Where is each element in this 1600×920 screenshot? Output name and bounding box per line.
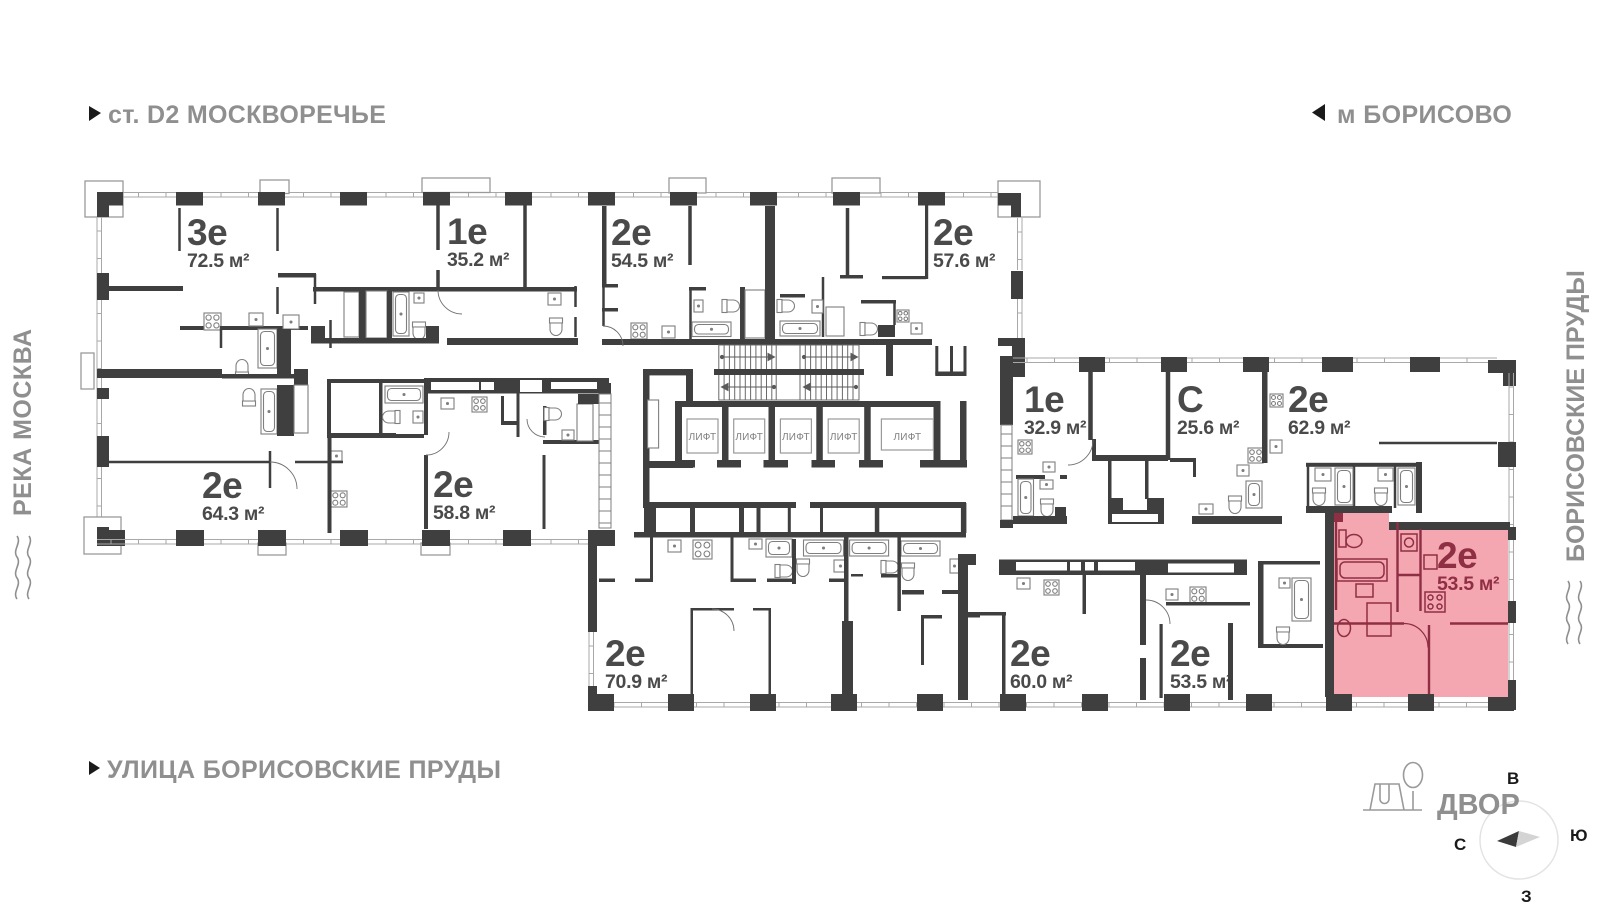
svg-text:53.5 м²: 53.5 м² bbox=[1170, 671, 1233, 693]
svg-text:С: С bbox=[1177, 379, 1203, 420]
svg-text:2е: 2е bbox=[433, 464, 473, 505]
svg-text:1е: 1е bbox=[447, 211, 487, 252]
svg-text:З: З bbox=[1521, 887, 1532, 906]
svg-text:2е: 2е bbox=[605, 633, 645, 674]
svg-text:БОРИСОВСКИЕ ПРУДЫ: БОРИСОВСКИЕ ПРУДЫ bbox=[1562, 270, 1590, 562]
svg-text:2е: 2е bbox=[1288, 379, 1328, 420]
svg-text:ЛИФТ: ЛИФТ bbox=[782, 432, 810, 443]
svg-text:32.9 м²: 32.9 м² bbox=[1024, 417, 1087, 439]
svg-text:Ю: Ю bbox=[1570, 826, 1588, 845]
svg-text:ст. D2 МОСКВОРЕЧЬЕ: ст. D2 МОСКВОРЕЧЬЕ bbox=[108, 101, 386, 129]
svg-text:м БОРИСОВО: м БОРИСОВО bbox=[1337, 101, 1512, 129]
svg-text:25.6 м²: 25.6 м² bbox=[1177, 417, 1240, 439]
svg-text:2е: 2е bbox=[1010, 633, 1050, 674]
svg-text:РЕКА МОСКВА: РЕКА МОСКВА bbox=[9, 328, 37, 516]
svg-text:70.9 м²: 70.9 м² bbox=[605, 671, 668, 693]
svg-text:60.0 м²: 60.0 м² bbox=[1010, 671, 1073, 693]
svg-text:1е: 1е bbox=[1024, 379, 1064, 420]
svg-text:С: С bbox=[1454, 835, 1466, 854]
svg-text:2е: 2е bbox=[1170, 633, 1210, 674]
svg-text:2е: 2е bbox=[1437, 535, 1477, 576]
svg-text:72.5 м²: 72.5 м² bbox=[187, 250, 250, 272]
svg-text:2е: 2е bbox=[202, 465, 242, 506]
svg-text:54.5 м²: 54.5 м² bbox=[611, 250, 674, 272]
svg-text:УЛИЦА БОРИСОВСКИЕ ПРУДЫ: УЛИЦА БОРИСОВСКИЕ ПРУДЫ bbox=[107, 756, 501, 784]
svg-text:В: В bbox=[1507, 769, 1519, 788]
svg-text:ДВОР: ДВОР bbox=[1437, 789, 1520, 821]
svg-text:2е: 2е bbox=[933, 212, 973, 253]
svg-text:ЛИФТ: ЛИФТ bbox=[830, 432, 858, 443]
svg-text:53.5 м²: 53.5 м² bbox=[1437, 573, 1500, 595]
svg-text:ЛИФТ: ЛИФТ bbox=[735, 432, 763, 443]
svg-text:35.2 м²: 35.2 м² bbox=[447, 249, 510, 271]
svg-text:58.8 м²: 58.8 м² bbox=[433, 502, 496, 524]
svg-text:3е: 3е bbox=[187, 212, 227, 253]
svg-text:2е: 2е bbox=[611, 212, 651, 253]
svg-text:64.3 м²: 64.3 м² bbox=[202, 503, 265, 525]
svg-text:ЛИФТ: ЛИФТ bbox=[894, 432, 922, 443]
svg-text:57.6 м²: 57.6 м² bbox=[933, 250, 996, 272]
svg-text:62.9 м²: 62.9 м² bbox=[1288, 417, 1351, 439]
svg-text:ЛИФТ: ЛИФТ bbox=[689, 432, 717, 443]
